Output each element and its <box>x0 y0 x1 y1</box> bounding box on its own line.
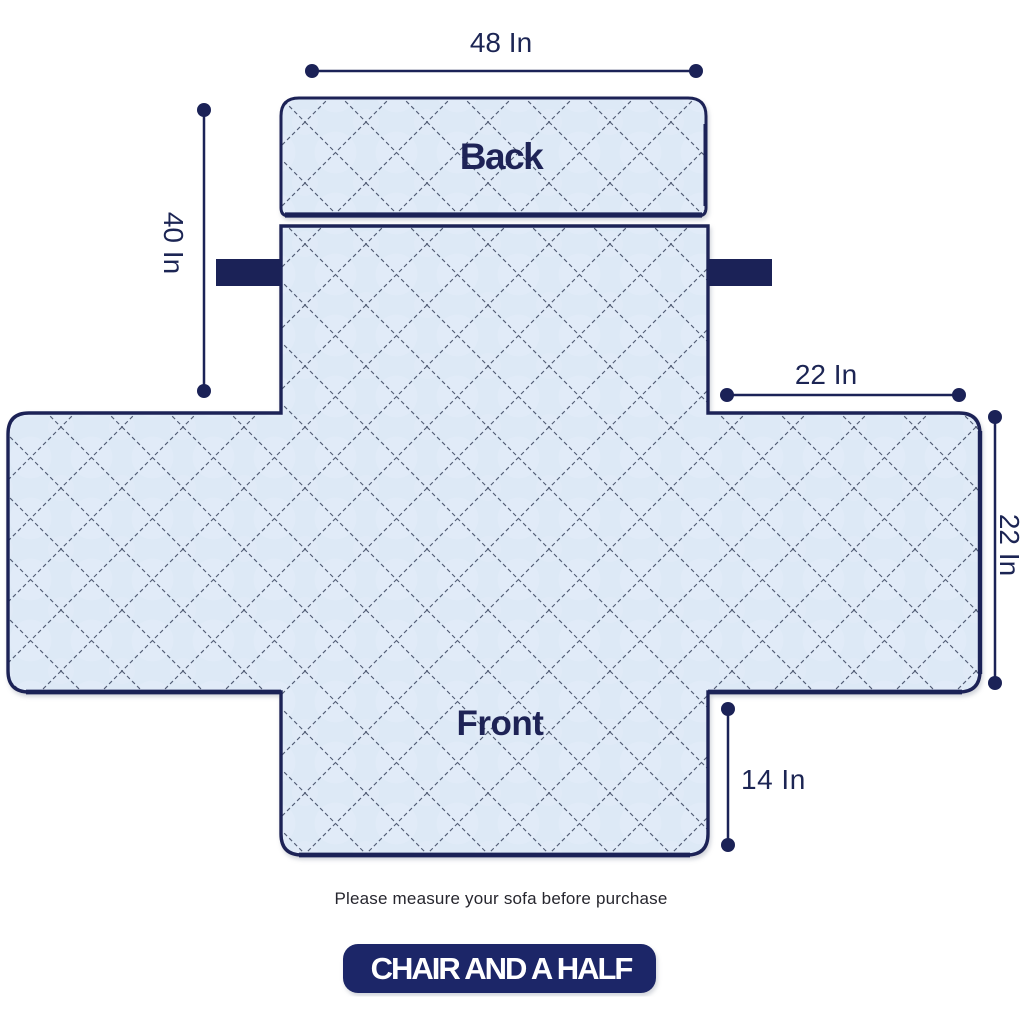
svg-text:Front: Front <box>457 704 545 743</box>
svg-text:14 In: 14 In <box>741 764 806 795</box>
svg-text:CHAIR AND A HALF: CHAIR AND A HALF <box>371 951 633 986</box>
svg-text:22 In: 22 In <box>795 359 857 390</box>
svg-text:40 In: 40 In <box>158 212 189 274</box>
svg-text:Please measure your sofa befor: Please measure your sofa before purchase <box>334 889 667 908</box>
svg-text:48 In: 48 In <box>470 27 532 58</box>
svg-text:22 In: 22 In <box>994 514 1024 576</box>
svg-text:Back: Back <box>460 136 544 177</box>
